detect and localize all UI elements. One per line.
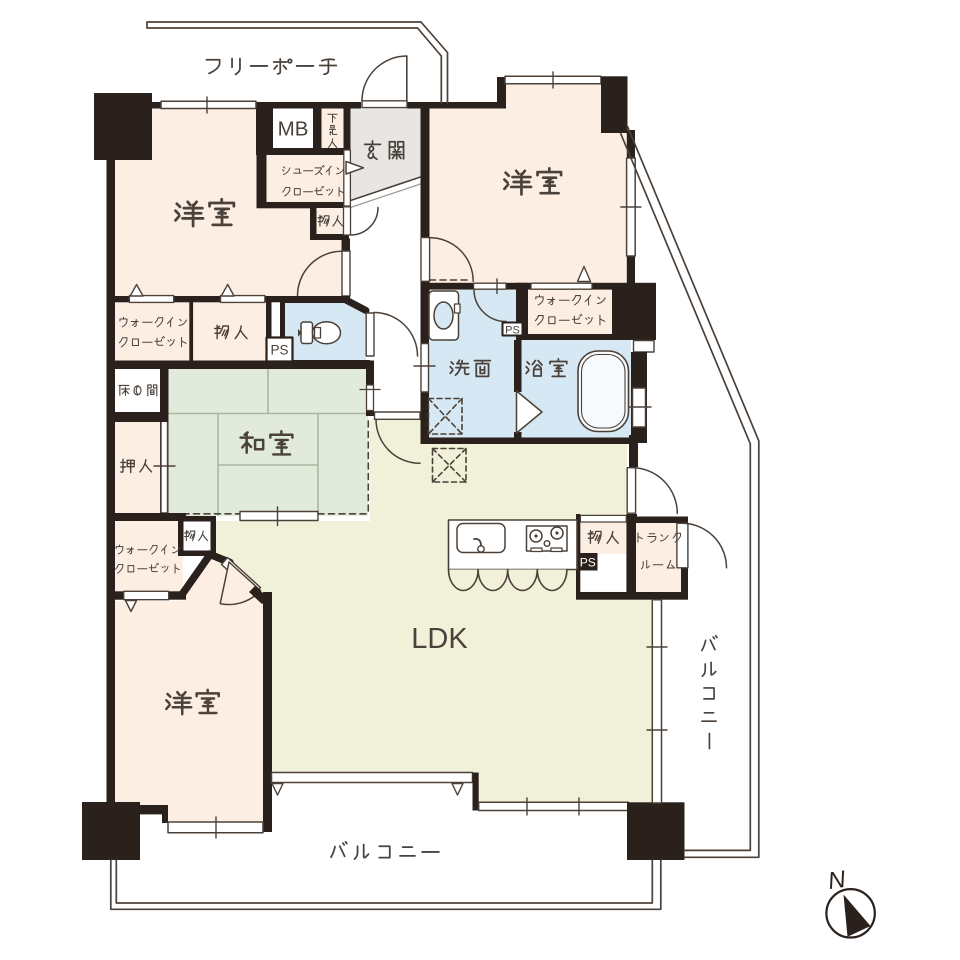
- svg-text:PS: PS: [580, 556, 596, 570]
- svg-text:MB: MB: [278, 118, 309, 141]
- svg-text:PS: PS: [270, 343, 288, 358]
- svg-text:LDK: LDK: [411, 623, 468, 655]
- svg-text:PS: PS: [505, 325, 520, 337]
